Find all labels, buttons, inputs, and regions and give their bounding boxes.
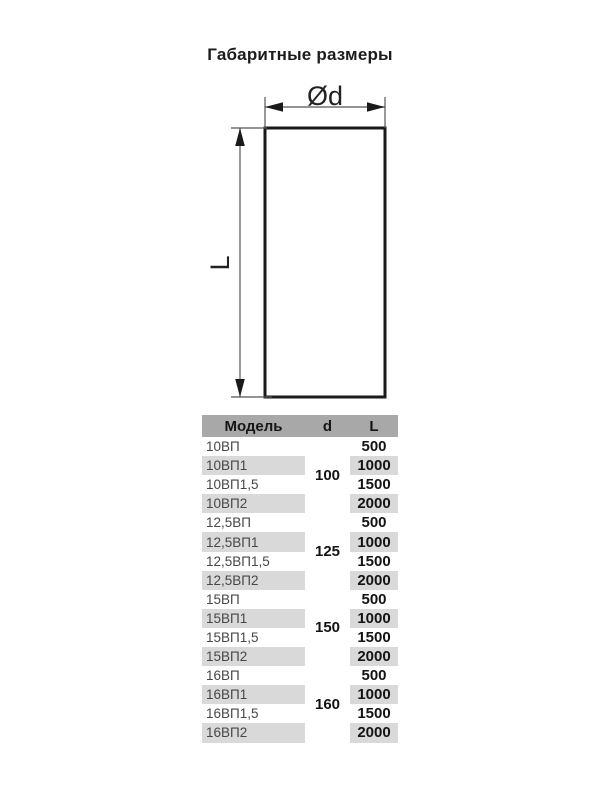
page: Габаритные размеры Ød L Модель d L 10ВП … [0,0,600,800]
l-value-cell: 1000 [350,532,398,551]
model-cell: 15ВП1 [202,609,305,628]
dimensions-table: Модель d L 10ВП 10ВП1 10ВП1,5 10ВП2 100 … [202,415,398,743]
model-cell: 10ВП1,5 [202,475,305,494]
header-l: L [350,418,398,435]
header-model: Модель [202,418,305,435]
model-cell: 15ВП2 [202,647,305,666]
table-group-d100: 10ВП 10ВП1 10ВП1,5 10ВП2 100 500 1000 15… [202,437,398,513]
l-value-cell: 1500 [350,628,398,647]
l-value-cell: 2000 [350,723,398,742]
page-title: Габаритные размеры [0,45,600,65]
model-cell: 16ВП1,5 [202,704,305,723]
l-value-cell: 500 [350,513,398,532]
arrow-up-icon [235,128,245,146]
arrow-down-icon [235,379,245,397]
tube-body [265,128,385,397]
model-cell: 16ВП1 [202,685,305,704]
length-label: L [205,255,235,270]
l-value-cell: 1000 [350,609,398,628]
table-group-d160: 16ВП 16ВП1 16ВП1,5 16ВП2 160 500 1000 15… [202,666,398,742]
model-cell: 10ВП1 [202,456,305,475]
d-value-cell: 150 [305,590,350,666]
table-header-row: Модель d L [202,415,398,437]
l-value-cell: 2000 [350,571,398,590]
table-group-d125: 12,5ВП 12,5ВП1 12,5ВП1,5 12,5ВП2 125 500… [202,513,398,589]
l-value-cell: 500 [350,590,398,609]
l-value-cell: 1000 [350,685,398,704]
model-cell: 16ВП [202,666,305,685]
model-cell: 15ВП [202,590,305,609]
model-cell: 16ВП2 [202,723,305,742]
d-value-cell: 125 [305,513,350,589]
model-cell: 10ВП2 [202,494,305,513]
d-value-cell: 100 [305,437,350,513]
header-d: d [305,418,350,435]
l-value-cell: 1500 [350,552,398,571]
model-cell: 12,5ВП1 [202,532,305,551]
model-cell: 12,5ВП1,5 [202,552,305,571]
arrow-right-icon [367,102,385,112]
l-value-cell: 1500 [350,704,398,723]
model-cell: 10ВП [202,437,305,456]
dimension-drawing: Ød L [195,85,415,415]
d-value-cell: 160 [305,666,350,742]
l-value-cell: 1000 [350,456,398,475]
model-cell: 12,5ВП [202,513,305,532]
model-cell: 12,5ВП2 [202,571,305,590]
l-value-cell: 1500 [350,475,398,494]
l-value-cell: 500 [350,437,398,456]
l-value-cell: 2000 [350,494,398,513]
table-group-d150: 15ВП 15ВП1 15ВП1,5 15ВП2 150 500 1000 15… [202,590,398,666]
model-cell: 15ВП1,5 [202,628,305,647]
arrow-left-icon [265,102,283,112]
diameter-label: Ød [307,85,343,111]
l-value-cell: 2000 [350,647,398,666]
l-value-cell: 500 [350,666,398,685]
